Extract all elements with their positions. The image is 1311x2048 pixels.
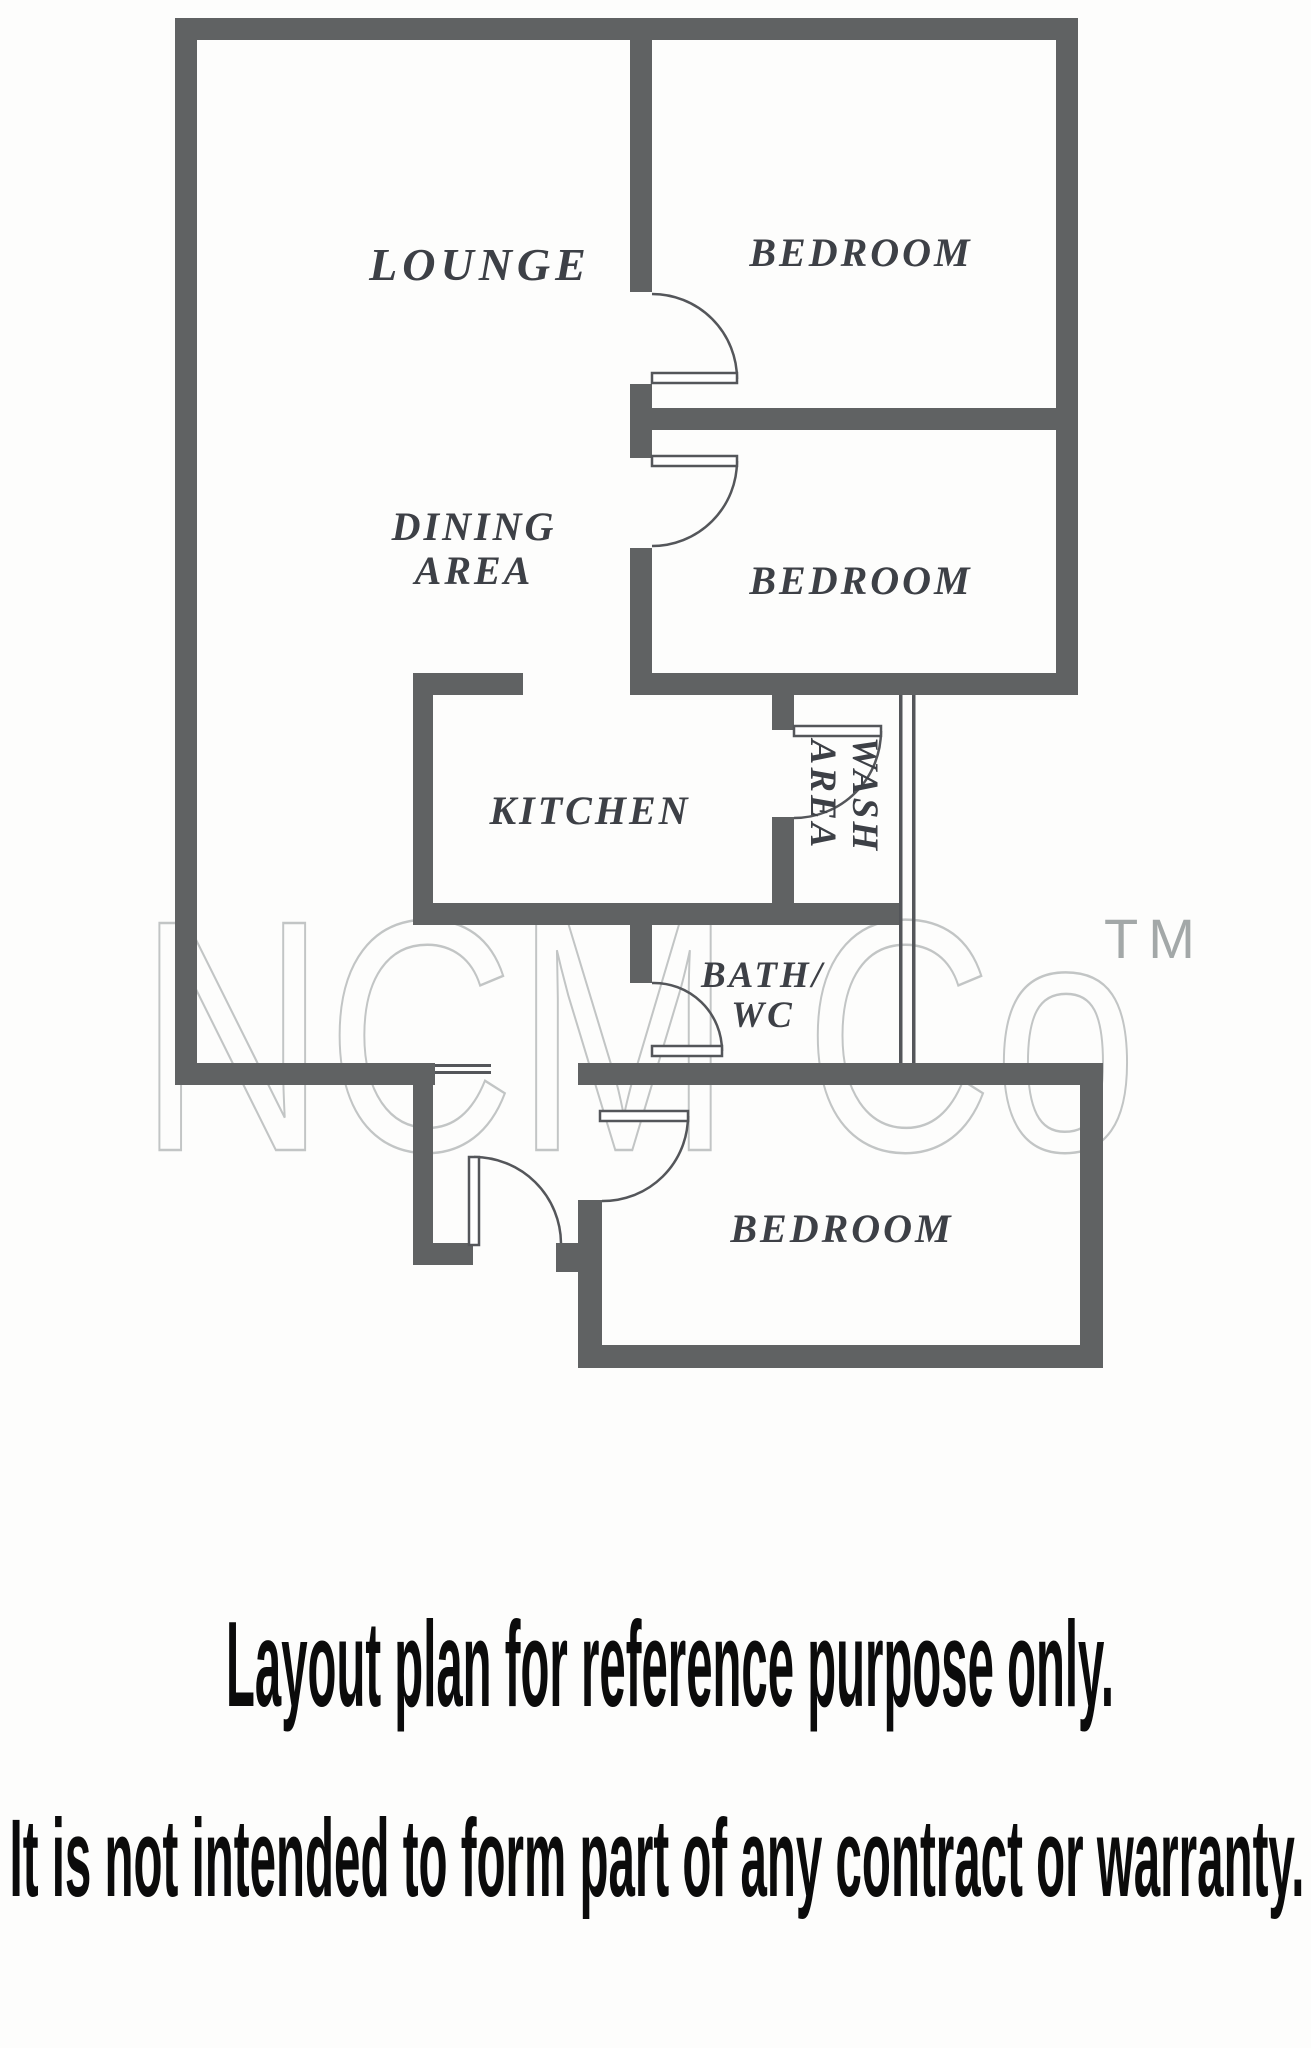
kitchen-label: KITCHEN [488, 788, 690, 833]
wall-partition-lounge-bedrooms-middle [630, 384, 652, 458]
bedroom-top-door-leaf [652, 373, 737, 383]
wall-bedroom-divider [652, 408, 1078, 430]
wall-kitchen-left [413, 695, 433, 923]
lounge-label: LOUNGE [368, 239, 591, 290]
bedroom-bottom-door-leaf [600, 1111, 688, 1121]
dining-area-label-line2: AREA [412, 548, 534, 593]
bedroom-middle-label: BEDROOM [748, 558, 972, 603]
dining-area-label-line1: DINING [391, 504, 557, 549]
wall-partition-lounge-bedrooms-lower [630, 548, 652, 673]
bedroom-top-label: BEDROOM [748, 230, 972, 275]
bedroom-bottom-label: BEDROOM [729, 1206, 953, 1251]
bath-wc-label-line1: BATH/ [700, 955, 826, 996]
wash-area-label: WASH AREA [802, 737, 885, 853]
wall-dining-bottom [175, 1063, 435, 1085]
bath-wc-label-line2: WC [731, 995, 795, 1036]
wash-area-label-line2: AREA [802, 738, 843, 851]
wall-bath-left-stub [630, 925, 652, 983]
wash-edge-line-outer [899, 695, 903, 1063]
trademark-symbol: TM [1104, 907, 1205, 970]
wall-bedroom-bottom-top [578, 1063, 1103, 1085]
wall-bedroom-bottom-bottom [578, 1345, 1103, 1368]
wall-entrance-jamb-stub [556, 1243, 580, 1272]
wall-outer-left [175, 18, 197, 1085]
wall-outer-top [175, 18, 1078, 40]
wall-bedroom-bottom-right [1080, 1063, 1103, 1368]
bedroom-middle-door-leaf [652, 456, 737, 466]
wall-entrance-foot [413, 1243, 473, 1265]
wall-wash-left-upper [772, 695, 794, 730]
wall-mid-horizontal [630, 673, 1078, 695]
wall-wash-left-lower [772, 817, 794, 903]
wall-outer-right-upper [1056, 40, 1078, 695]
bath-door-leaf [652, 1046, 722, 1056]
wall-partition-lounge-bedrooms-upper [630, 40, 652, 292]
wall-bedroom-bottom-left [578, 1200, 602, 1368]
wash-edge-line-inner [912, 695, 916, 1063]
caption-line1: Layout plan for reference purpose only. [226, 1596, 1114, 1732]
floor-plan-canvas: NCM Co TM [0, 0, 1311, 2048]
wall-entrance-corridor [413, 1085, 433, 1243]
entrance-door-leaf [469, 1157, 479, 1245]
wash-area-door-leaf [794, 726, 881, 736]
caption-line2: It is not intended to form part of any c… [10, 1797, 1305, 1920]
wall-kitchen-top-left [413, 673, 523, 695]
floor-plan-page: NCM Co TM [0, 0, 1311, 2048]
wall-kitchen-bottom [413, 903, 899, 925]
wash-area-label-line1: WASH [844, 737, 885, 853]
